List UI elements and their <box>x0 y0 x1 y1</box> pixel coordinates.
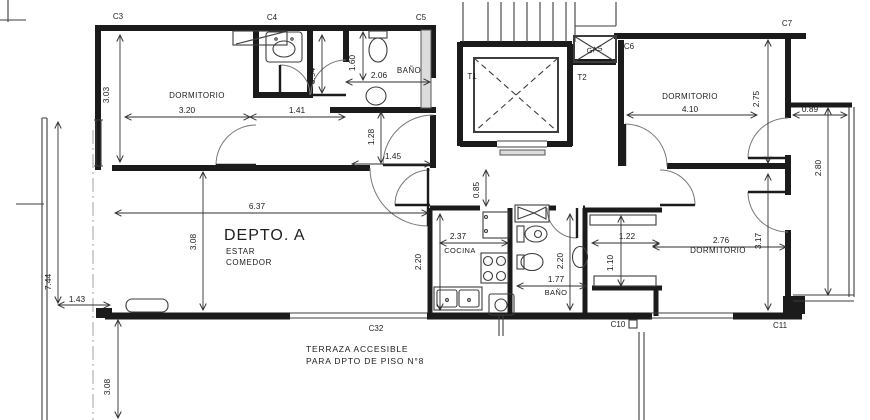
window-terrace-c32 <box>290 313 427 318</box>
walls-right-apartment <box>614 36 806 316</box>
elevator <box>474 58 558 155</box>
elevator-diagonals <box>474 58 558 132</box>
bench-icon <box>126 299 168 312</box>
dim-1-22: 1.22 <box>619 231 636 241</box>
dim-1-45: 1.45 <box>385 151 402 161</box>
ref-c3: C3 <box>113 12 124 21</box>
door-arcs <box>216 60 788 238</box>
dim-3-20: 3.20 <box>179 105 196 115</box>
dim-0-94: 0.94 <box>307 68 317 85</box>
fridge-icon <box>483 212 509 238</box>
terrace-divider <box>639 332 644 420</box>
stove-icon <box>481 253 508 283</box>
dim-4-10: 4.10 <box>682 104 699 114</box>
dim-0-89: 0.89 <box>802 104 819 114</box>
elevator-door <box>497 141 547 147</box>
ref-gas: GAS <box>586 44 603 56</box>
toilet-icon <box>369 31 387 62</box>
dim-2-20-cocina: 2.20 <box>413 254 423 271</box>
neighbor-reference-lines <box>0 0 44 204</box>
ref-c5: C5 <box>416 13 427 22</box>
doors <box>216 60 788 238</box>
dim-7-44: 7.44 <box>43 274 53 291</box>
ref-t2: T2 <box>577 73 587 82</box>
closet-dormitorio-3-shelf-bottom <box>594 276 656 286</box>
ref-c4: C4 <box>267 13 278 22</box>
room-estar: ESTAR <box>226 247 255 256</box>
kitchen-sink-icon <box>434 287 482 310</box>
dim-2-20-banio: 2.20 <box>555 253 565 270</box>
window-bottom-right <box>650 313 733 318</box>
bidet-2-icon <box>517 254 543 271</box>
ref-c8: C8 <box>96 311 107 320</box>
washbasin-icon <box>266 32 302 62</box>
vent-duct-icon <box>515 205 549 222</box>
dim-1-60: 1.60 <box>347 55 357 72</box>
ref-c32: C32 <box>369 324 384 333</box>
dim-1-77: 1.77 <box>548 274 565 284</box>
dim-3-08-estar: 3.08 <box>188 234 198 251</box>
dim-1-28: 1.28 <box>366 129 376 146</box>
dim-2-75: 2.75 <box>751 91 761 108</box>
dim-2-37: 2.37 <box>450 231 467 241</box>
toilet-2-icon <box>517 226 547 242</box>
room-comedor: COMEDOR <box>226 258 272 267</box>
elevator-sill <box>500 150 545 155</box>
room-cocina: COCINA <box>444 246 476 255</box>
room-dormitorio-3: DORMITORIO <box>690 246 746 255</box>
terrace-note-line-2: PARA DPTO DE PISO N°8 <box>306 356 424 366</box>
dim-2-80: 2.80 <box>813 160 823 177</box>
dim-1-10: 1.10 <box>605 255 615 272</box>
stair-treads <box>488 2 566 42</box>
ref-c10: C10 <box>611 320 626 329</box>
dimension-lines <box>58 32 847 418</box>
dim-0-85: 0.85 <box>471 182 481 199</box>
dim-2-76: 2.76 <box>713 235 730 245</box>
fixtures <box>126 30 588 336</box>
column-c11 <box>783 296 805 314</box>
balcony-parapet <box>793 107 854 301</box>
ref-c11: C11 <box>773 321 788 330</box>
room-banio-2: BAÑO <box>545 288 568 297</box>
ref-c7: C7 <box>782 19 793 28</box>
c10-marker <box>629 320 637 328</box>
room-dormitorio-2: DORMITORIO <box>662 92 718 101</box>
closet-dormitorio-3-shelf-top <box>590 215 656 225</box>
closets <box>233 31 656 328</box>
floor-plan-drawing: DORMITORIOBAÑODORMITORIODEPTO. AESTARCOM… <box>0 0 870 420</box>
ref-t1: T1 <box>467 72 477 81</box>
apartment-title: DEPTO. A <box>224 227 306 244</box>
dim-3-17: 3.17 <box>753 233 763 250</box>
floor-plan-canvas: DORMITORIOBAÑODORMITORIODEPTO. AESTARCOM… <box>0 0 870 420</box>
dim-3-03: 3.03 <box>101 87 111 104</box>
dim-1-41: 1.41 <box>289 105 306 115</box>
room-dormitorio-1: DORMITORIO <box>169 91 225 100</box>
bidet-icon <box>366 87 386 105</box>
room-banio-1: BAÑO <box>397 66 421 75</box>
terrace-note-line-1: TERRAZA ACCESIBLE <box>306 344 408 354</box>
dim-1-43: 1.43 <box>69 294 86 304</box>
dim-6-37: 6.37 <box>249 201 266 211</box>
dim-2-06: 2.06 <box>371 70 388 80</box>
dim-3-08-terraza: 3.08 <box>102 379 112 396</box>
ref-c6: C6 <box>624 42 635 51</box>
bathtub-icon <box>421 30 431 108</box>
